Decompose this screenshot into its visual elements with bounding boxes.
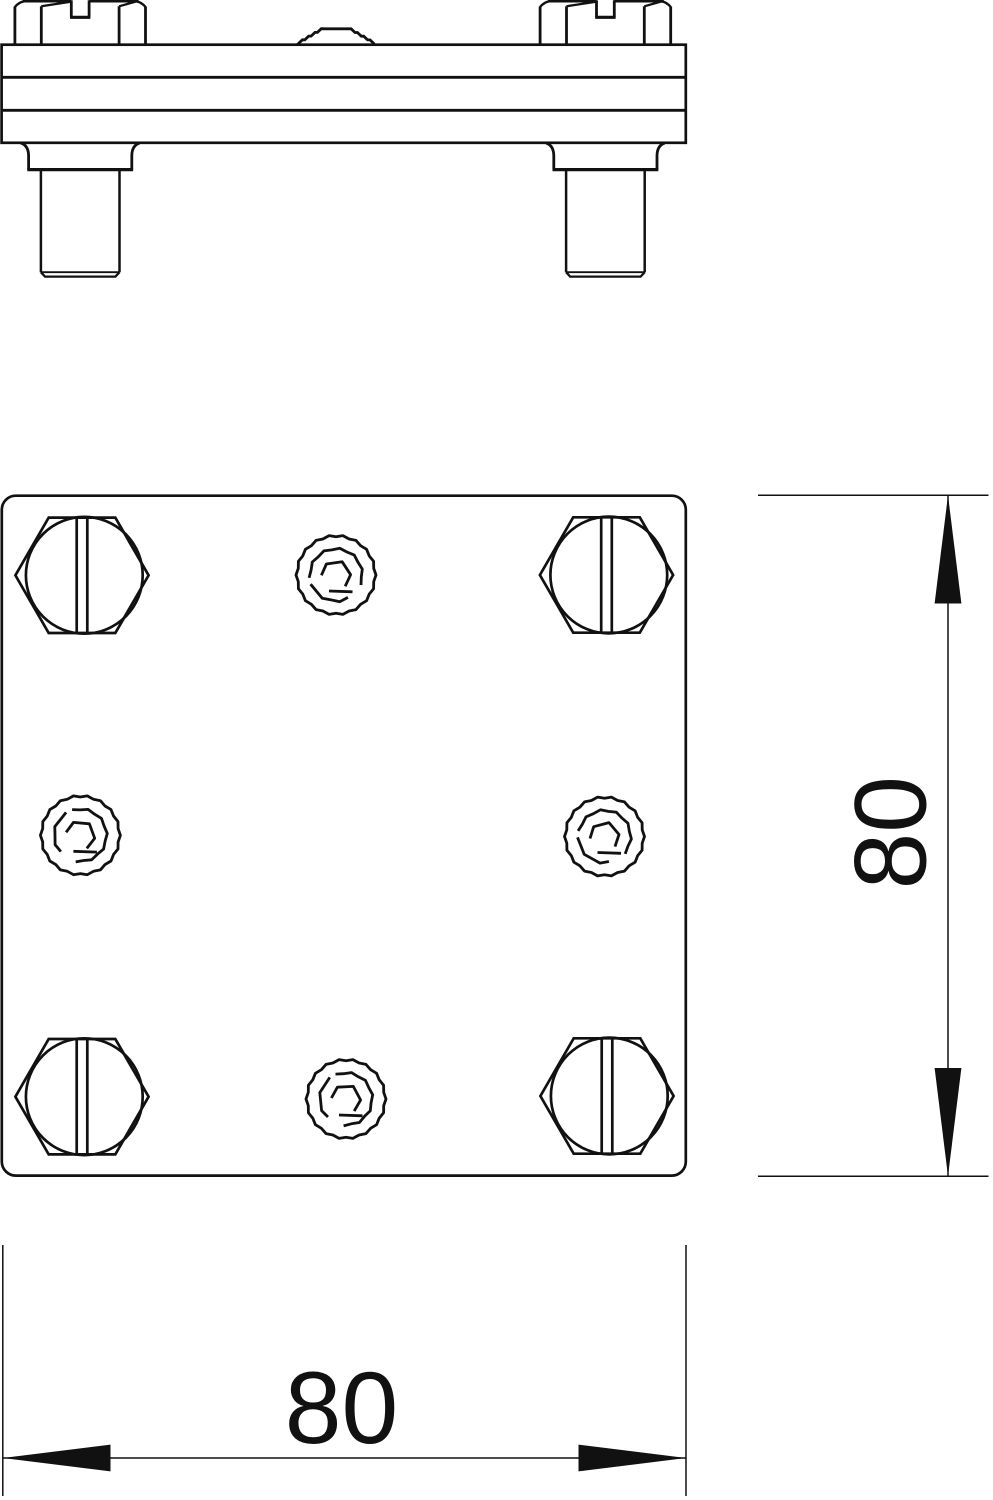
- svg-text:80: 80: [285, 1351, 398, 1465]
- svg-text:80: 80: [833, 776, 947, 889]
